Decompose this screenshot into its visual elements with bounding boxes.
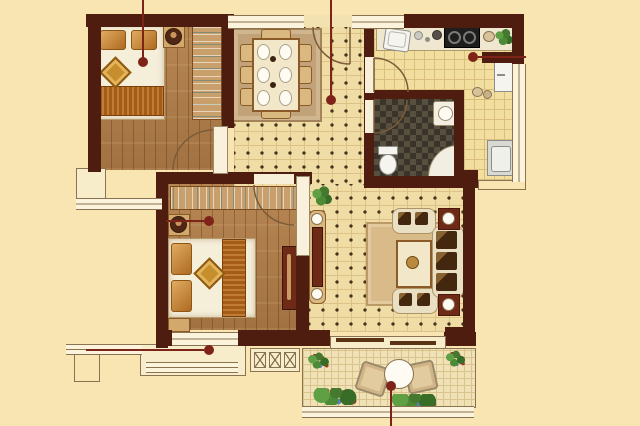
- entry-door-opening: [304, 15, 352, 27]
- wall-bottom-right: [444, 332, 476, 346]
- balcony-outer-railing: [302, 406, 474, 418]
- flower-planter: [308, 352, 330, 370]
- kitchen-utensil: [432, 30, 442, 40]
- window-pane: [269, 352, 281, 368]
- kitchen-bowl: [483, 31, 495, 42]
- place-setting: [257, 67, 270, 83]
- lamp: [165, 28, 182, 45]
- bay-window-bottom-glass: [146, 362, 238, 373]
- blanket: [222, 239, 246, 317]
- wall-bedroom2-right-lower: [296, 252, 309, 330]
- wall-living-right: [463, 188, 475, 338]
- wall-kitchen-bath-divider: [374, 90, 456, 99]
- pillow: [131, 30, 157, 50]
- window-pane: [254, 352, 266, 368]
- window-dining: [228, 15, 304, 29]
- bay-window-wing-box: [74, 353, 100, 382]
- shower-drain: [438, 106, 453, 121]
- blanket: [96, 86, 164, 116]
- wall-top-left: [86, 14, 232, 27]
- pillow: [100, 30, 126, 50]
- wall-left-bedroom1: [88, 14, 101, 172]
- washing-machine-door: [491, 146, 511, 172]
- kitchen-bowl: [472, 87, 483, 97]
- window-left-notch: [76, 198, 162, 210]
- console-runner: [312, 227, 323, 287]
- armchair-cushion: [417, 293, 430, 306]
- place-setting: [279, 90, 292, 106]
- wardrobe: [192, 24, 225, 120]
- wall-bedroom1-right: [222, 14, 234, 128]
- side-table-lamp: [442, 298, 455, 311]
- console-knob: [311, 213, 323, 225]
- table-centerpiece: [270, 82, 276, 88]
- floor-plan: [0, 0, 640, 426]
- wall-bath-corner: [456, 170, 478, 188]
- wall-top-kitchen: [404, 14, 524, 28]
- stove-burner: [463, 31, 476, 44]
- armchair-cushion: [398, 212, 411, 225]
- wall-kitchen-stub: [482, 52, 524, 63]
- window-hall-top: [352, 15, 404, 29]
- sofa-cushion: [436, 252, 457, 270]
- window-bedroom2-bottom: [172, 332, 238, 346]
- kitchen-plant: [495, 29, 513, 47]
- kitchen-utensil: [414, 31, 423, 40]
- balcony-table: [384, 359, 414, 389]
- stove-burner: [448, 31, 461, 44]
- sliding-door-leaf: [390, 341, 436, 345]
- refrigerator-handle: [497, 74, 505, 76]
- plant: [312, 186, 332, 208]
- console-knob: [311, 288, 323, 300]
- flower-planter: [446, 350, 466, 368]
- kitchen-door-opening: [365, 57, 374, 93]
- place-setting: [257, 44, 270, 60]
- sink-basin: [387, 31, 407, 48]
- table-centerpiece: [270, 56, 276, 62]
- place-setting: [279, 67, 292, 83]
- window-pane: [284, 352, 296, 368]
- place-setting: [279, 44, 292, 60]
- flower-planter: [312, 388, 360, 405]
- toilet-bowl: [379, 154, 397, 175]
- place-setting: [257, 90, 270, 106]
- wall-bottom-mid: [238, 330, 330, 346]
- bedroom2-door-opening: [254, 174, 294, 184]
- window-box-between-bay-and-balcony: [250, 348, 300, 372]
- kitchen-bowl: [483, 90, 492, 99]
- sofa-cushion: [436, 273, 457, 291]
- tv-screen: [287, 254, 291, 300]
- lamp: [170, 216, 187, 233]
- bathroom-door-opening: [365, 100, 374, 133]
- armchair-cushion: [415, 212, 428, 225]
- window-kitchen-right: [512, 64, 526, 182]
- sofa-cushion: [436, 231, 457, 249]
- armchair-cushion: [399, 293, 412, 306]
- wardrobe: [170, 186, 298, 210]
- wall-bottom-left-stub: [156, 330, 172, 346]
- bedroom1-door-leaf: [213, 126, 228, 174]
- bedroom2-door-leaf: [296, 176, 310, 256]
- coffee-table-decor: [406, 256, 419, 269]
- side-table-lamp: [442, 212, 455, 225]
- kitchen-utensil: [425, 37, 430, 42]
- bay-window-wing-lines: [66, 344, 142, 355]
- pillow: [171, 243, 192, 275]
- pillow: [171, 280, 192, 312]
- sliding-door-leaf: [336, 338, 384, 342]
